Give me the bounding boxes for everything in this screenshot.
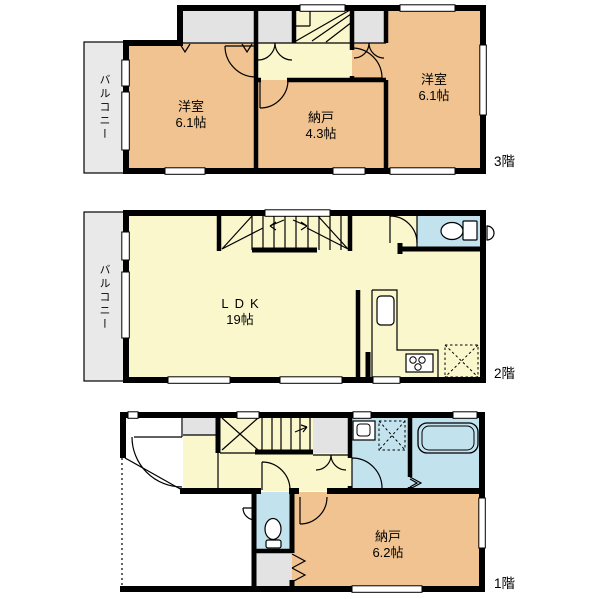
floor-label-3f: 3階 <box>494 154 515 170</box>
room-size: 6.2帖 <box>348 545 428 561</box>
room-name: 納戸 <box>348 529 428 545</box>
toilet-vent-2f <box>487 226 494 240</box>
room-size: 19帖 <box>200 312 280 328</box>
stove-icon <box>406 354 433 372</box>
closet-west-3f <box>183 8 256 43</box>
stairs-1f <box>220 415 313 453</box>
toilet-icon-2f <box>441 223 463 240</box>
bathroom-1f <box>410 418 482 491</box>
room-label-east-bedroom-3f: 洋室 6.1帖 <box>394 72 474 104</box>
room-name: 洋室 <box>151 99 231 115</box>
under-stair-storage-1f <box>255 551 292 589</box>
room-name: 納戸 <box>281 110 361 126</box>
room-name: 洋室 <box>394 72 474 88</box>
kitchen-sink-icon <box>377 296 394 325</box>
hall-3f <box>256 43 352 80</box>
closet-east-3f <box>352 8 386 43</box>
washbasin-icon-1f <box>353 421 375 440</box>
balcony-label-2f: バルコニー <box>88 230 120 366</box>
room-label-storage-1f: 納戸 6.2帖 <box>348 529 428 561</box>
entrance-door-1f <box>132 437 182 487</box>
floor-1f <box>120 412 485 593</box>
floor-2f <box>84 210 494 383</box>
floor-plan: バルコニー バルコニー 洋室 6.1帖 納戸 4.3帖 洋室 6.1帖 LDK … <box>0 0 600 599</box>
entrance-hall-1f <box>183 435 218 490</box>
closet-1f <box>313 418 348 453</box>
closet-center-3f <box>256 8 294 43</box>
floor-label-2f: 2階 <box>494 366 515 382</box>
room-name: LDK <box>200 296 280 312</box>
shoe-cabinet-1f <box>183 418 218 435</box>
balcony-label-3f: バルコニー <box>88 52 120 164</box>
room-size: 6.1帖 <box>151 115 231 131</box>
room-label-ldk-2f: LDK 19帖 <box>200 296 280 328</box>
room-label-west-bedroom-3f: 洋室 6.1帖 <box>151 99 231 131</box>
toilet-icon-1f <box>265 519 281 549</box>
room-label-storage-3f: 納戸 4.3帖 <box>281 110 361 142</box>
room-size: 4.3帖 <box>281 126 361 142</box>
room-size: 6.1帖 <box>394 88 474 104</box>
porch-edge-1f <box>125 458 182 490</box>
floor-label-1f: 1階 <box>494 576 515 592</box>
